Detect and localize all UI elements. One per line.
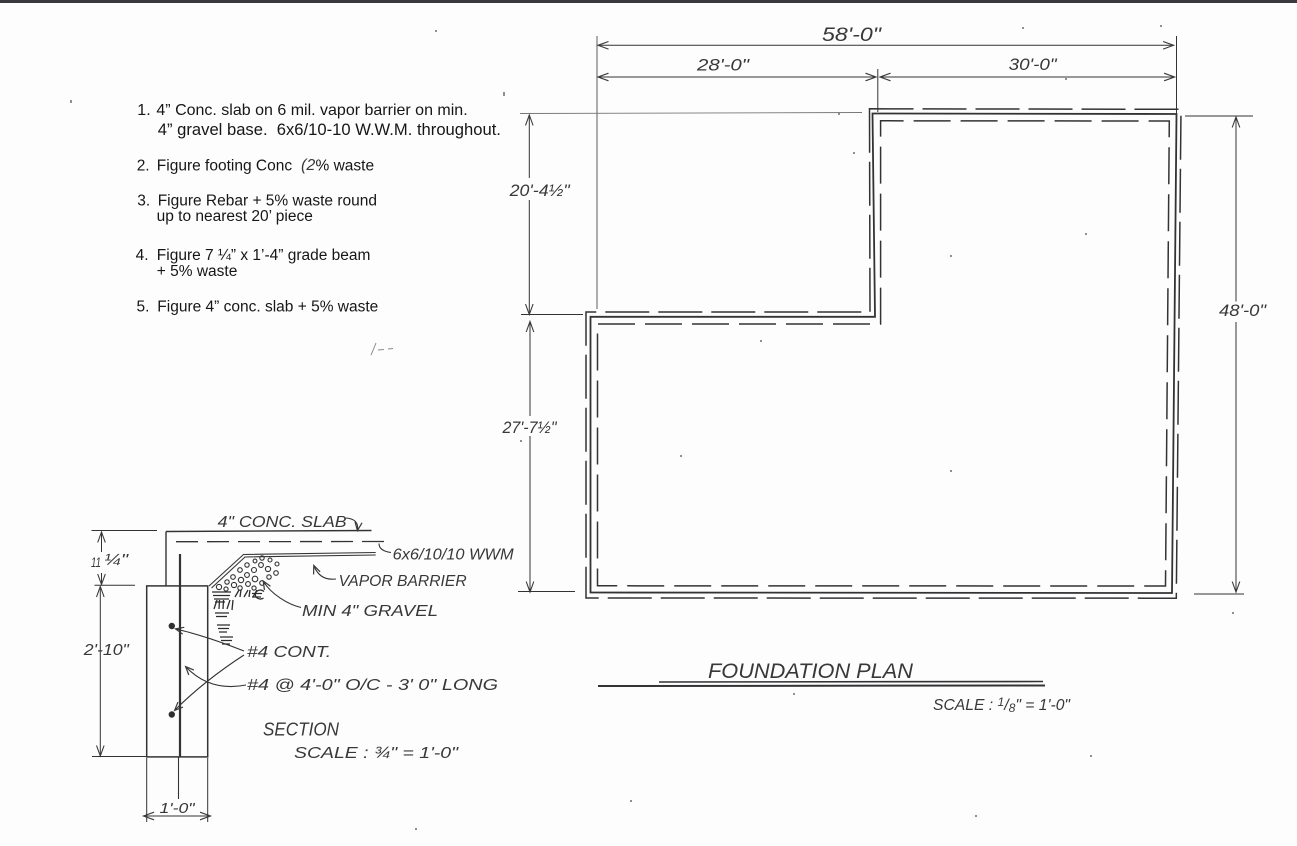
svg-text:28'-0": 28'-0" bbox=[696, 56, 750, 75]
svg-text:27'-7½": 27'-7½" bbox=[502, 418, 558, 437]
svg-text:VAPOR BARRIER: VAPOR BARRIER bbox=[339, 573, 467, 590]
svg-text:(2: (2 bbox=[301, 157, 315, 174]
svg-text:1'-0": 1'-0" bbox=[160, 800, 196, 817]
svg-text:#4 @ 4'-0" O/C - 3' 0" LONG: #4 @ 4'-0" O/C - 3' 0" LONG bbox=[247, 677, 498, 694]
svg-text:4” gravel base. 6x6/10-10 W.W: 4” gravel base. 6x6/10-10 W.W.M. through… bbox=[158, 120, 501, 139]
svg-text:+ 5% waste: + 5% waste bbox=[157, 263, 238, 280]
svg-text:30'-0": 30'-0" bbox=[1009, 55, 1058, 74]
svg-text:48'-0": 48'-0" bbox=[1219, 301, 1267, 320]
svg-text:1.: 1. bbox=[137, 102, 150, 119]
svg-text:MIN 4" GRAVEL: MIN 4" GRAVEL bbox=[302, 603, 438, 620]
svg-text:4” Conc. slab on 6 mil. vapor: 4” Conc. slab on 6 mil. vapor barrier on… bbox=[156, 102, 467, 119]
svg-text:up to nearest 20’ piece: up to nearest 20’ piece bbox=[157, 208, 313, 225]
svg-text:58'-0": 58'-0" bbox=[822, 25, 883, 46]
svg-text:6x6/10/10 WWM: 6x6/10/10 WWM bbox=[393, 547, 514, 564]
svg-text:SECTION: SECTION bbox=[263, 720, 340, 740]
svg-text:SCALE : ¾" = 1'-0": SCALE : ¾" = 1'-0" bbox=[294, 745, 460, 762]
svg-text:Figure 4” conc. slab + 5% wast: Figure 4” conc. slab + 5% waste bbox=[157, 298, 378, 315]
svg-text:4.: 4. bbox=[136, 247, 149, 264]
svg-text:5.: 5. bbox=[137, 298, 150, 315]
svg-text:3.: 3. bbox=[137, 192, 150, 209]
svg-text:2'-10": 2'-10" bbox=[83, 642, 131, 659]
svg-text:20'-4½": 20'-4½" bbox=[509, 181, 571, 200]
svg-text:Figure 7 ¼” x 1’-4” grade beam: Figure 7 ¼” x 1’-4” grade beam bbox=[157, 247, 371, 264]
svg-text:¼": ¼" bbox=[104, 552, 130, 569]
svg-text:#4 CONT.: #4 CONT. bbox=[247, 644, 331, 661]
svg-text:11: 11 bbox=[91, 554, 101, 570]
svg-text:% waste: % waste bbox=[316, 157, 375, 174]
svg-text:4" CONC. SLAB: 4" CONC. SLAB bbox=[218, 514, 347, 531]
svg-text:Figure Rebar + 5% waste round: Figure Rebar + 5% waste round bbox=[158, 192, 377, 209]
svg-text:2.: 2. bbox=[137, 157, 150, 174]
svg-text:Figure footing Conc: Figure footing Conc bbox=[157, 157, 293, 174]
svg-text:FOUNDATION PLAN: FOUNDATION PLAN bbox=[708, 660, 914, 683]
